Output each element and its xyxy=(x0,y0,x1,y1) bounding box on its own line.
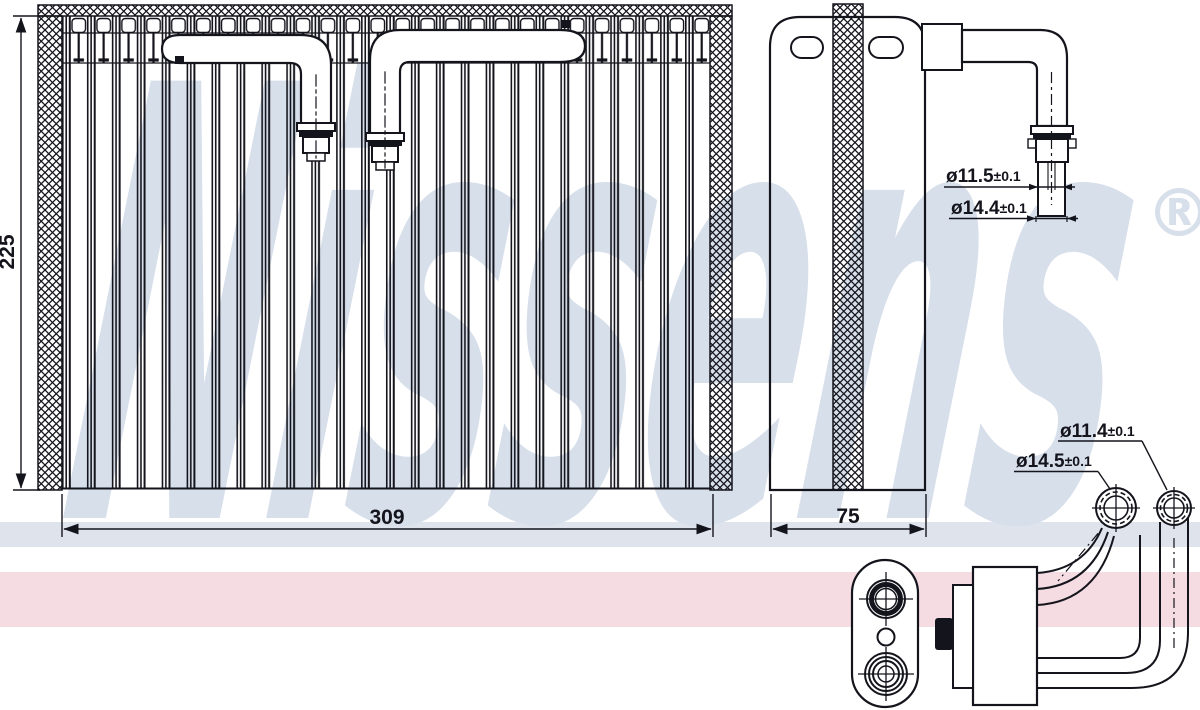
mounting-slot xyxy=(869,37,903,58)
valve-knob xyxy=(935,618,953,650)
top-side-plate xyxy=(38,5,732,16)
tube-caps xyxy=(62,16,710,33)
front-view xyxy=(38,5,732,490)
dim-width-label: 309 xyxy=(369,506,404,529)
left-side-plate xyxy=(38,16,62,490)
pipe-bracket xyxy=(175,56,184,64)
dim-height-label: 225 xyxy=(0,234,19,269)
technical-drawing-page: Nissens ® xyxy=(0,0,1200,710)
dim-height: 225 xyxy=(0,16,40,490)
right-side-plate xyxy=(710,16,732,490)
valve-block-boss xyxy=(953,585,973,688)
flange-center-hole xyxy=(878,629,895,646)
pipe-bracket xyxy=(561,20,570,28)
mounting-slot xyxy=(791,37,823,58)
center-plate xyxy=(833,4,863,490)
pipe-block xyxy=(922,24,962,70)
registered-trademark: ® xyxy=(1146,175,1200,252)
dim-conn-large-label: ø14.5±0.1 xyxy=(1016,451,1092,472)
evaporator-drawing: Nissens ® xyxy=(0,0,1200,710)
dim-conn-small-label: ø11.4±0.1 xyxy=(1060,421,1135,442)
valve-block xyxy=(973,567,1037,705)
dim-side-tube-label: ø11.5±0.1 xyxy=(946,166,1021,187)
dim-depth-label: 75 xyxy=(836,505,860,528)
dim-side-collar-label: ø14.4±0.1 xyxy=(951,198,1027,219)
